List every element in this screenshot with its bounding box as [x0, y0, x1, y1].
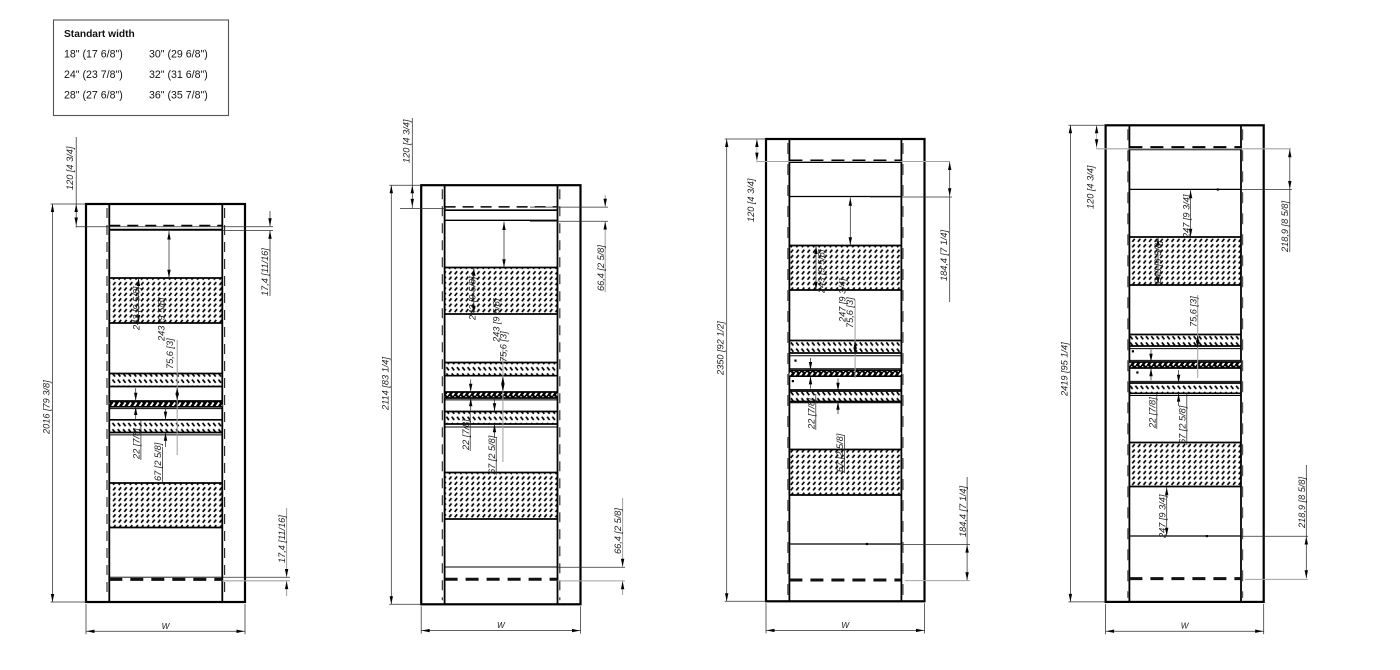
svg-text:17,4 [11/16]: 17,4 [11/16] — [277, 515, 287, 563]
svg-text:75,6 [3]: 75,6 [3] — [845, 297, 855, 328]
svg-text:2350 [92 1/2]: 2350 [92 1/2] — [716, 321, 726, 376]
svg-text:Standart width: Standart width — [64, 29, 135, 40]
svg-text:75,6 [3]: 75,6 [3] — [165, 338, 175, 369]
svg-text:66,4 [2 5/8]: 66,4 [2 5/8] — [596, 245, 606, 291]
svg-text:22 [7/8]: 22 [7/8] — [132, 428, 142, 460]
svg-text:W: W — [162, 622, 171, 631]
svg-text:243 [9 5/8]: 243 [9 5/8] — [132, 286, 142, 331]
svg-text:120 [4 3/4]: 120 [4 3/4] — [1086, 165, 1096, 209]
svg-text:17,4 [11/16]: 17,4 [11/16] — [260, 248, 270, 296]
svg-text:243 [9 5/8]: 243 [9 5/8] — [817, 249, 827, 294]
svg-text:18" (17 6/8"): 18" (17 6/8") — [64, 49, 123, 61]
svg-text:247 [9 3/4]: 247 [9 3/4] — [1157, 494, 1167, 539]
svg-text:75,6 [3]: 75,6 [3] — [1189, 296, 1199, 327]
svg-text:120 [4 3/4]: 120 [4 3/4] — [401, 119, 411, 163]
svg-text:243 [9 5/8]: 243 [9 5/8] — [1153, 240, 1163, 285]
svg-text:W: W — [1181, 622, 1190, 631]
svg-text:184,4 [7 1/4]: 184,4 [7 1/4] — [939, 229, 949, 281]
svg-text:2114 [83 1/4]: 2114 [83 1/4] — [380, 357, 390, 411]
svg-text:24" (23 7/8"): 24" (23 7/8") — [64, 69, 123, 81]
svg-text:30" (29 6/8"): 30" (29 6/8") — [149, 49, 208, 61]
svg-text:247 [9 3/4]: 247 [9 3/4] — [1181, 194, 1191, 239]
svg-text:67 [2 5/8]: 67 [2 5/8] — [1177, 405, 1187, 444]
svg-text:2419 [95 1/4]: 2419 [95 1/4] — [1059, 342, 1069, 397]
svg-text:218,9 [8 5/8]: 218,9 [8 5/8] — [1297, 476, 1307, 529]
svg-text:75,6 [3]: 75,6 [3] — [498, 331, 508, 362]
svg-text:67 [2 5/8]: 67 [2 5/8] — [835, 433, 845, 472]
svg-text:120 [4 3/4]: 120 [4 3/4] — [65, 146, 75, 190]
svg-text:22 [7/8]: 22 [7/8] — [461, 419, 471, 451]
svg-text:243 [9 5/8]: 243 [9 5/8] — [468, 276, 478, 321]
svg-text:28" (27 6/8"): 28" (27 6/8") — [64, 90, 123, 102]
svg-text:32" (31 6/8"): 32" (31 6/8") — [149, 69, 208, 81]
svg-text:67 [2 5/8]: 67 [2 5/8] — [487, 435, 497, 474]
svg-text:22 [7/8]: 22 [7/8] — [1147, 397, 1157, 429]
svg-text:243 [9 5/8]: 243 [9 5/8] — [157, 297, 167, 342]
svg-text:120 [4 3/4]: 120 [4 3/4] — [746, 178, 756, 222]
svg-text:184,4 [7 1/4]: 184,4 [7 1/4] — [958, 485, 968, 537]
svg-text:2016 [79 3/8]: 2016 [79 3/8] — [42, 380, 52, 435]
svg-text:36" (35 7/8"): 36" (35 7/8") — [149, 90, 208, 102]
svg-text:W: W — [497, 621, 506, 630]
svg-text:67 [2 5/8]: 67 [2 5/8] — [153, 442, 163, 481]
svg-text:W: W — [841, 621, 850, 630]
svg-text:218,9 [8 5/8]: 218,9 [8 5/8] — [1280, 200, 1290, 253]
svg-text:22 [7/8]: 22 [7/8] — [806, 398, 816, 430]
svg-text:66,4 [2 5/8]: 66,4 [2 5/8] — [613, 508, 623, 554]
